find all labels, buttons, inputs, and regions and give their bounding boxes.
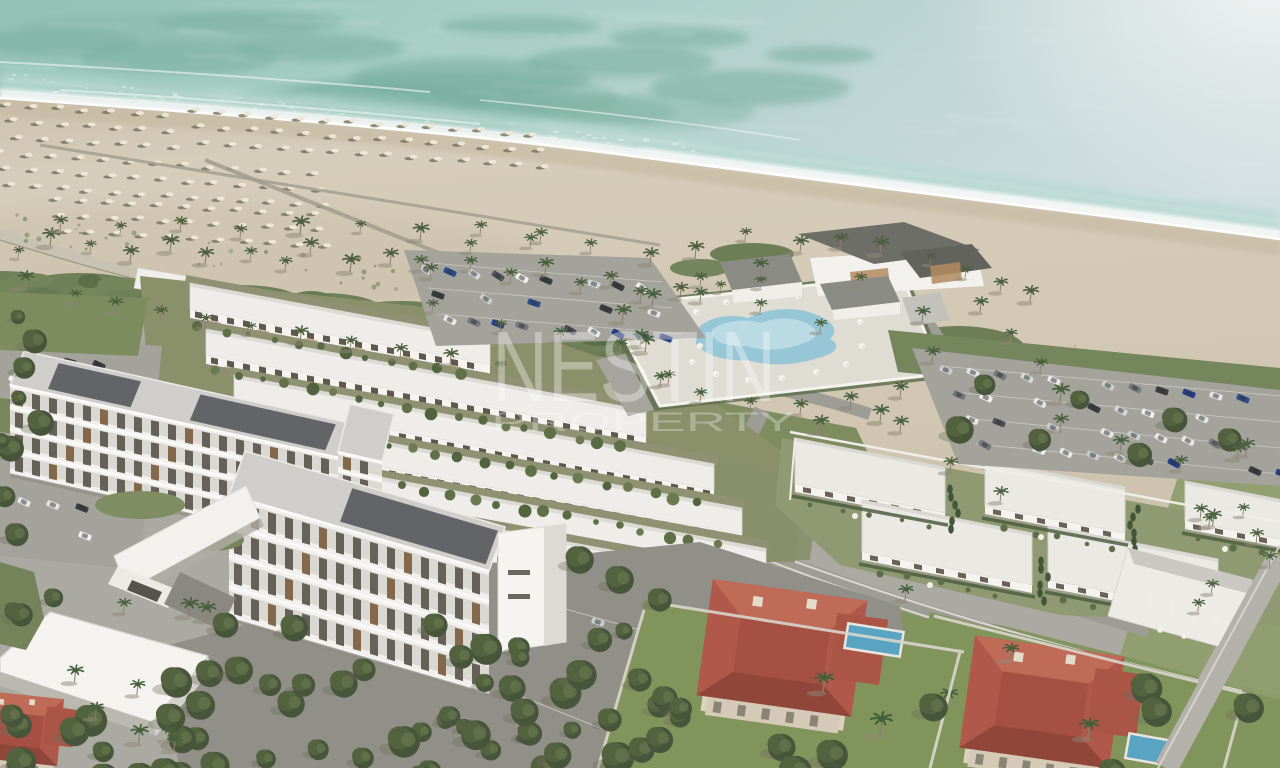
svg-text:PROPERTY: PROPERTY — [491, 407, 796, 437]
